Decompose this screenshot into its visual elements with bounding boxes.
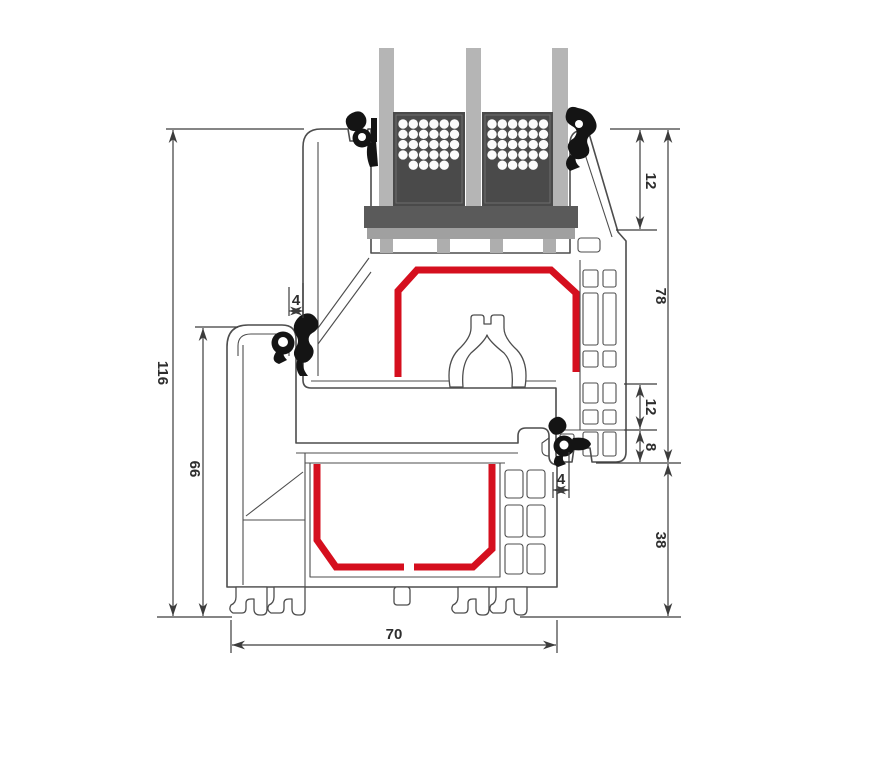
dim-label-116: 116 xyxy=(154,361,171,385)
dim-label-38: 38 xyxy=(652,532,669,549)
glazing-unit xyxy=(364,48,578,253)
glazing-bridge xyxy=(364,206,578,228)
dim-label-78: 78 xyxy=(652,288,669,305)
window-profile-diagram: 116 66 4 12 78 12 8 4 38 70 xyxy=(0,0,877,766)
glass-pane-inner xyxy=(552,48,568,208)
frame-anchor-feet xyxy=(230,587,527,615)
dim-label-4-left: 4 xyxy=(292,292,301,309)
spacer-block-left xyxy=(393,112,465,206)
glazing-supports xyxy=(380,239,556,253)
dim-label-70: 70 xyxy=(386,626,403,643)
technical-drawing-canvas: 116 66 4 12 78 12 8 4 38 70 xyxy=(0,0,877,766)
dim-label-8: 8 xyxy=(642,443,659,451)
dim-label-4-right: 4 xyxy=(557,471,566,488)
glass-pane-outer xyxy=(379,48,394,208)
spacer-block-right xyxy=(482,112,553,206)
dim-label-12-top: 12 xyxy=(642,173,659,190)
dim-label-12-mid: 12 xyxy=(642,399,659,416)
dim-label-66: 66 xyxy=(186,461,203,478)
glass-pane-middle xyxy=(466,48,481,208)
setting-block xyxy=(367,228,575,239)
